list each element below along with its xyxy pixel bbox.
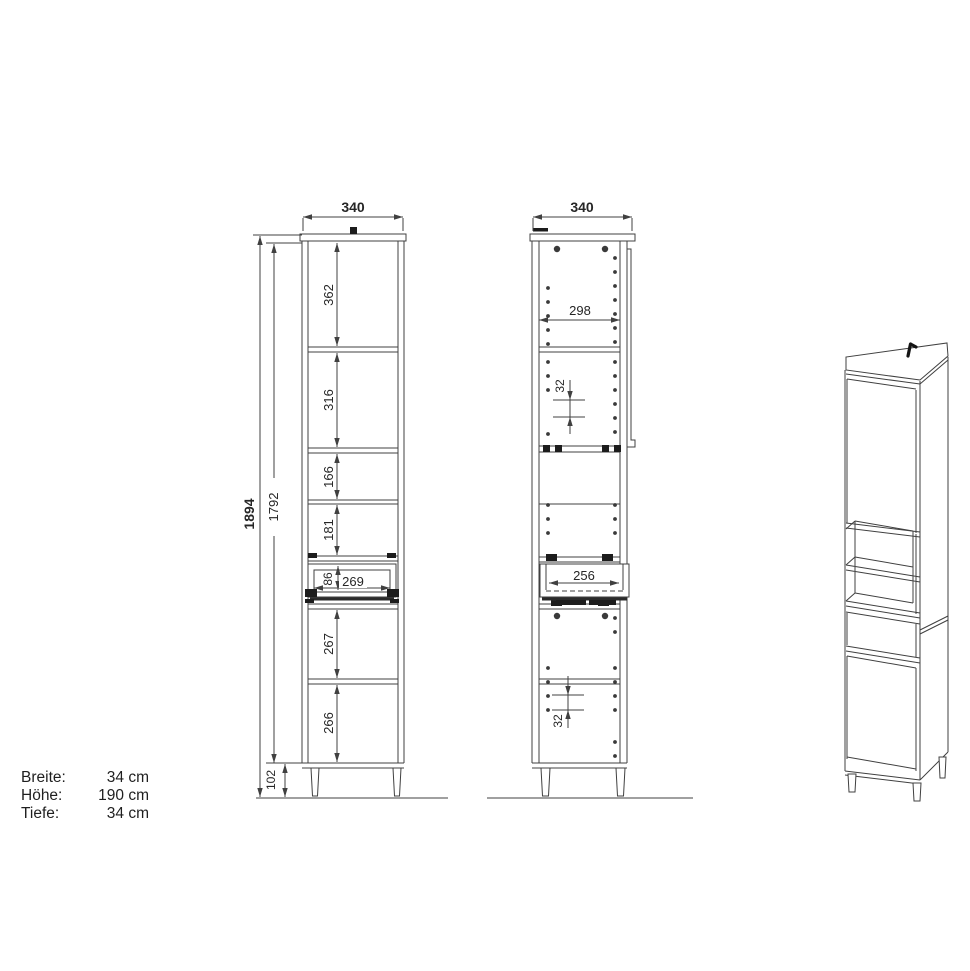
front-elevation-view: 340 1894 1792 102 362 316 166 181 267 26…	[241, 199, 448, 798]
height-label: Höhe:	[21, 787, 62, 805]
front-dimensions: 340 1894 1792 102 362 316 166 181 267 26…	[241, 199, 403, 797]
info-row-depth: Tiefe: 34 cm	[21, 805, 149, 823]
dim-inner-width: 298	[569, 303, 591, 318]
perspective-view	[845, 343, 948, 801]
height-value: 190 cm	[98, 787, 149, 805]
lower-door-3d	[847, 656, 916, 771]
width-value: 34 cm	[107, 769, 149, 787]
dim-height-total: 1894	[241, 498, 257, 529]
dimensions-info-panel: Breite: 34 cm Höhe: 190 cm Tiefe: 34 cm	[21, 769, 149, 823]
drawer-slide-left	[556, 600, 586, 605]
dim-height-carcass: 1792	[266, 493, 281, 522]
dim-drawer-inner-width: 256	[573, 568, 595, 583]
interior-section-view: 340 298 32 256 32	[487, 199, 693, 798]
dim-drawer-width: 269	[342, 574, 364, 589]
dim-comp-2: 316	[321, 389, 336, 411]
upper-door-3d	[846, 379, 920, 537]
depth-label: Tiefe:	[21, 805, 59, 823]
dim-plinth: 102	[264, 770, 278, 790]
dim-comp-4: 181	[321, 519, 336, 541]
cabinet-drawing-svg: 340 1894 1792 102 362 316 166 181 267 26…	[0, 0, 970, 971]
dim-hole-pitch-lower: 32	[551, 714, 565, 728]
interior-dimensions: 340 298 32 256 32	[533, 199, 632, 728]
top-fitting-mark	[533, 228, 548, 232]
interior-legs	[541, 768, 625, 796]
top-knob	[350, 227, 357, 234]
front-legs	[311, 768, 401, 796]
screw-holes	[554, 246, 608, 619]
technical-drawing-page: 340 1894 1792 102 362 316 166 181 267 26…	[0, 0, 970, 971]
info-row-height: Höhe: 190 cm	[21, 787, 149, 805]
depth-value: 34 cm	[107, 805, 149, 823]
dim-width-interior: 340	[570, 199, 594, 215]
top-panel-3d	[846, 343, 948, 380]
drawer-3d	[846, 612, 920, 663]
legs-3d	[848, 757, 946, 801]
dim-comp-6: 266	[321, 712, 336, 734]
dim-width-front: 340	[341, 199, 365, 215]
shelf-pin-holes	[546, 256, 617, 758]
dim-hole-pitch-upper: 32	[553, 379, 567, 393]
open-door-edge	[627, 249, 635, 447]
dim-comp-1: 362	[321, 284, 336, 306]
front-carcass	[256, 227, 448, 798]
dim-comp-3: 166	[321, 466, 336, 488]
dim-comp-5: 267	[321, 633, 336, 655]
side-joint-line	[920, 616, 948, 634]
info-row-width: Breite: 34 cm	[21, 769, 149, 787]
dim-drawer-height: 86	[321, 572, 335, 586]
width-label: Breite:	[21, 769, 66, 787]
drawer-slide-right	[589, 600, 616, 605]
